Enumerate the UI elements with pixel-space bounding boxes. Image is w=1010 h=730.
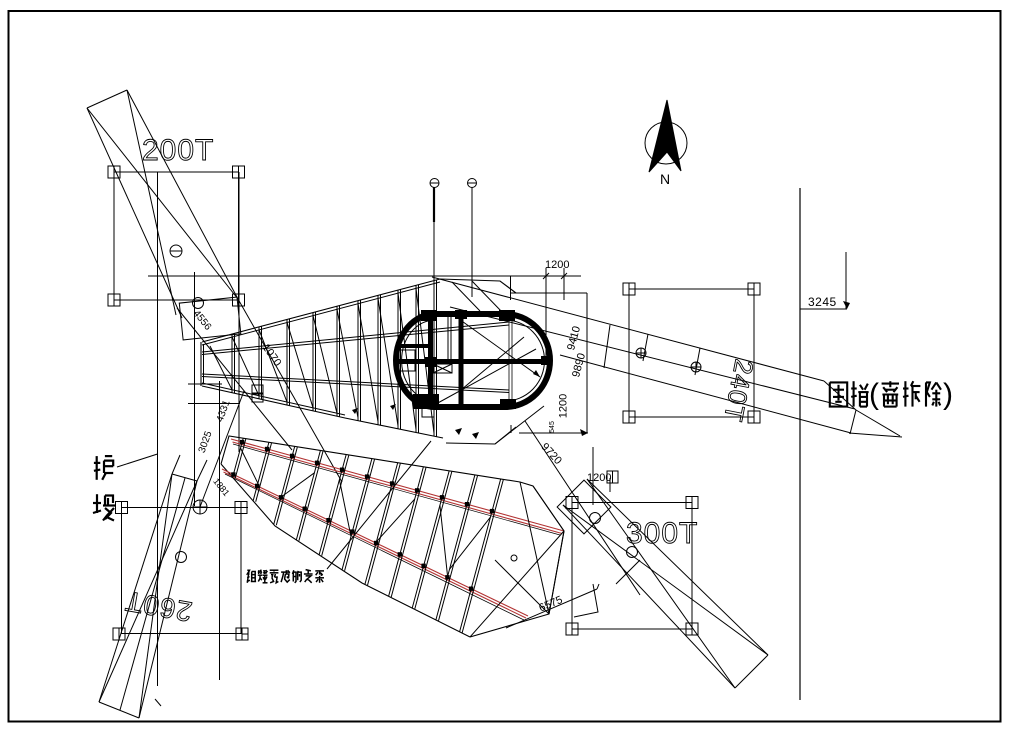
svg-text:1200: 1200: [558, 394, 570, 418]
svg-text:): ): [943, 378, 953, 411]
svg-text:(: (: [869, 378, 879, 411]
svg-text:1200: 1200: [587, 472, 611, 484]
svg-text:N: N: [660, 171, 670, 187]
svg-text:545: 545: [549, 421, 556, 433]
svg-text:3245: 3245: [808, 295, 837, 309]
svg-text:1200: 1200: [545, 259, 569, 271]
svg-text:200T: 200T: [142, 134, 214, 167]
svg-text:300T: 300T: [626, 517, 698, 550]
